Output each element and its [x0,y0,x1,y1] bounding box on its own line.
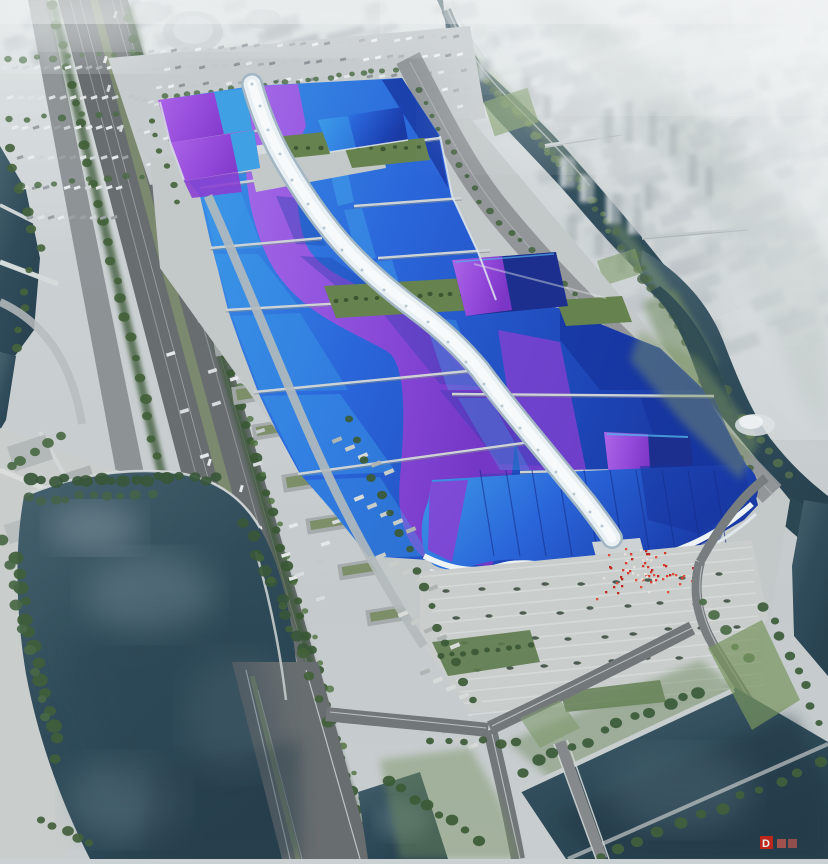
svg-text:D: D [762,838,770,850]
